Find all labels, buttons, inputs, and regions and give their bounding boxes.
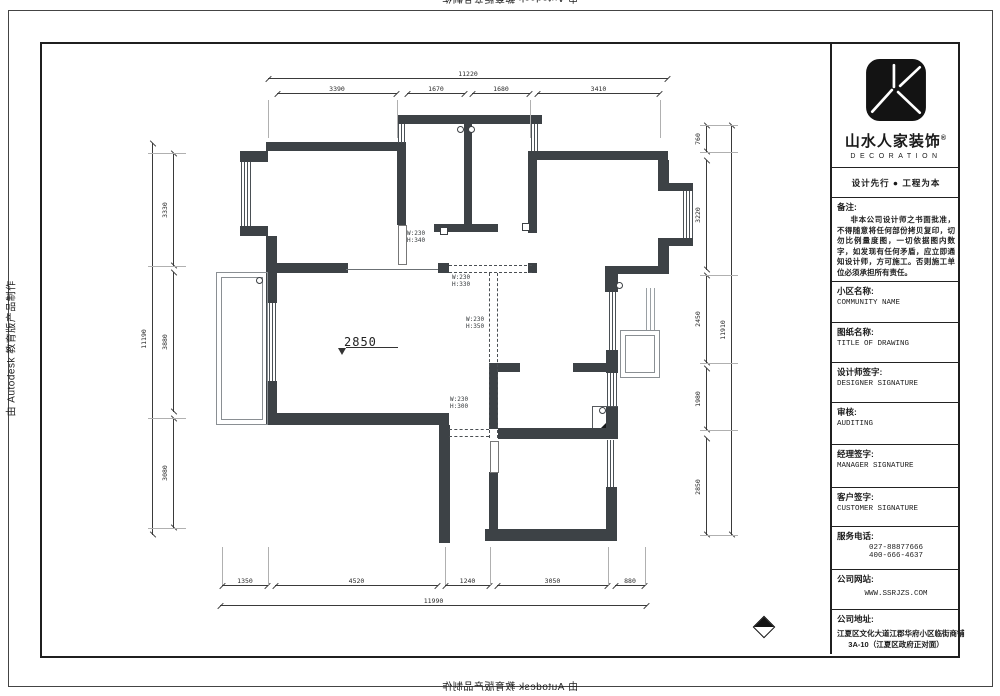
opening-size-label: W:230H:350: [466, 316, 484, 330]
dimension-line: 1680: [472, 93, 530, 94]
dashed-opening-line: [489, 273, 490, 438]
extension-line: [700, 125, 738, 126]
window-symbol: [607, 440, 616, 487]
wall: [573, 363, 617, 372]
field-label: 经理签字:: [837, 448, 955, 460]
extension-line: [490, 547, 491, 585]
field-label: 客户签字:: [837, 491, 955, 503]
dimension-line: 11990: [220, 605, 647, 606]
dimension-value: 1680: [472, 85, 530, 93]
wall: [498, 363, 520, 372]
fixture-circle-icon: [457, 126, 464, 133]
extension-line: [397, 100, 398, 138]
leader-line: [346, 347, 398, 348]
wall: [528, 151, 537, 233]
dimension-line: 3220: [706, 160, 707, 270]
website-label: 公司网站:: [837, 573, 955, 585]
wall: [438, 263, 449, 273]
dimension-line: 1670: [407, 93, 465, 94]
dimension-line: 4520: [275, 585, 438, 586]
dimension-line: 760: [706, 125, 707, 152]
dimension-value: 1350: [222, 577, 268, 585]
dashed-opening-line: [449, 272, 532, 273]
opening-size-label: W:230H:300: [450, 396, 468, 410]
company-slogan: 设计先行 ● 工程为本: [832, 168, 960, 198]
company-logo: [865, 58, 927, 122]
wall: [266, 263, 348, 273]
wall: [266, 413, 449, 425]
auditing-field: 审核: AUDITING: [832, 403, 960, 445]
dimension-line: 11190: [152, 143, 153, 535]
notes-text: 非本公司设计师之书面批准，不得随意将任何部份拷贝复印，切勿比例量度图，一切依据图…: [837, 215, 955, 278]
wall: [439, 425, 450, 543]
customer-signature-field: 客户签字: CUSTOMER SIGNATURE: [832, 488, 960, 527]
dimension-value: 11220: [268, 70, 668, 78]
wall: [266, 142, 406, 151]
autodesk-education-stamp-left: 由 Autodesk 教育版产品制作: [3, 285, 18, 417]
dimension-line: 11220: [268, 78, 668, 79]
extension-line: [268, 100, 269, 138]
field-value: DESIGNER SIGNATURE: [837, 380, 955, 388]
address-line-1: 江夏区文化大道江郡华府小区临街商铺: [837, 628, 955, 639]
phone-number-1: 027-88877666: [837, 544, 955, 552]
window-symbol: [607, 373, 617, 407]
opening-line: [346, 269, 438, 270]
extension-line: [445, 547, 446, 585]
extension-line: [700, 430, 738, 431]
extension-line: [660, 100, 661, 138]
dimension-value: 3050: [497, 577, 608, 585]
dimension-value: 880: [615, 577, 645, 585]
address-line-2: 3A-10（江夏区政府正对面）: [837, 639, 955, 650]
dashed-opening-line: [449, 429, 489, 430]
company-subtitle: DECORATION: [850, 153, 941, 160]
dimension-value: 3080: [161, 465, 169, 481]
dimension-value: 3330: [161, 202, 169, 218]
dimension-line: 1350: [222, 585, 268, 586]
dimension-value: 3220: [694, 207, 702, 223]
opening-size-value: W:230: [452, 274, 470, 281]
dimension-line: 2450: [706, 275, 707, 363]
field-label: 小区名称:: [837, 285, 955, 297]
extension-line: [700, 363, 738, 364]
autodesk-education-stamp-top: 由 Autodesk 教育版产品制作: [400, 0, 620, 7]
dimension-line: 3080: [173, 418, 174, 528]
dimension-line: 1980: [706, 368, 707, 430]
balcony-outline: [221, 277, 263, 420]
field-value: AUDITING: [837, 420, 955, 428]
wall: [533, 151, 668, 160]
wall: [464, 124, 472, 224]
extension-line: [148, 153, 186, 154]
dimension-line: 1240: [445, 585, 490, 586]
wall: [397, 115, 542, 124]
sheet-inner-border: [40, 42, 960, 658]
notes-field: 备注: 非本公司设计师之书面批准，不得随意将任何部份拷贝复印，切勿比例量度图，一…: [832, 198, 960, 282]
notes-label: 备注:: [837, 201, 955, 213]
address-field: 公司地址: 江夏区文化大道江郡华府小区临街商铺 3A-10（江夏区政府正对面）: [832, 610, 960, 654]
dimension-value: 1670: [407, 85, 465, 93]
field-value: MANAGER SIGNATURE: [837, 462, 955, 470]
field-value: COMMUNITY NAME: [837, 299, 955, 307]
extension-line: [222, 547, 223, 585]
leader-arrow-icon: [338, 348, 346, 355]
dimension-line: 3410: [537, 93, 660, 94]
phone-number-2: 400-666-4637: [837, 552, 955, 560]
fixture-circle-icon: [616, 282, 623, 289]
website-url: WWW.SSRJZS.COM: [837, 590, 955, 598]
title-block: 山水人家装饰® DECORATION 设计先行 ● 工程为本 备注: 非本公司设…: [830, 42, 960, 654]
window-symbol: [241, 162, 251, 226]
wall: [240, 151, 268, 162]
window-symbol: [398, 124, 407, 143]
field-label: 图纸名称:: [837, 326, 955, 338]
manager-signature-field: 经理签字: MANAGER SIGNATURE: [832, 445, 960, 488]
field-value: TITLE OF DRAWING: [837, 340, 955, 348]
wall: [606, 487, 617, 541]
community-name-field: 小区名称: COMMUNITY NAME: [832, 282, 960, 323]
website-field: 公司网站: WWW.SSRJZS.COM: [832, 570, 960, 610]
extension-line: [530, 100, 531, 138]
fixture-circle-icon: [468, 126, 475, 133]
extension-line: [700, 535, 738, 536]
opening-size-value: W:230: [450, 396, 468, 403]
autodesk-education-stamp-bottom: 由 Autodesk 教育版产品制作: [428, 678, 592, 693]
extension-line: [645, 547, 646, 585]
fixture-square-icon: [522, 223, 530, 231]
phone-field: 服务电话: 027-88877666 400-666-4637: [832, 527, 960, 570]
door-opening: [398, 225, 407, 265]
dimension-line: 3330: [173, 153, 174, 266]
extension-line: [148, 266, 186, 267]
dimension-value: 11910: [719, 320, 727, 340]
opening-size-label: W:230H:330: [452, 274, 470, 288]
dashed-opening-line: [449, 265, 532, 266]
drawing-title-field: 图纸名称: TITLE OF DRAWING: [832, 323, 960, 363]
window-symbol: [609, 292, 617, 350]
field-label: 审核:: [837, 406, 955, 418]
dimension-line: 3880: [173, 272, 174, 412]
opening-size-value: H:350: [466, 323, 484, 330]
wall: [498, 428, 618, 439]
wall: [605, 266, 618, 292]
balcony-outline: [625, 335, 655, 373]
dimension-value: 1240: [445, 577, 490, 585]
extension-line: [148, 418, 186, 419]
extension-line: [700, 152, 738, 153]
extension-line: [608, 547, 609, 585]
opening-size-value: H:340: [407, 237, 425, 244]
wall: [658, 183, 693, 191]
wall: [240, 226, 268, 236]
wall: [658, 160, 669, 183]
dimension-value: 760: [694, 133, 702, 145]
dimension-value: 3410: [537, 85, 660, 93]
phone-label: 服务电话:: [837, 530, 955, 542]
dimension-value: 2850: [694, 479, 702, 495]
dimension-value: 3880: [161, 334, 169, 350]
dashed-opening-line: [449, 436, 489, 437]
extension-line: [700, 275, 738, 276]
extension-line: [148, 528, 186, 529]
dashed-opening-line: [497, 273, 498, 438]
fixture-square-icon: [440, 227, 448, 235]
dimension-line: 11910: [731, 125, 732, 535]
door-opening: [490, 441, 499, 473]
wall: [658, 238, 693, 246]
registered-mark: ®: [941, 135, 947, 142]
level-annotation: 2850: [344, 331, 377, 350]
dimension-value: 4520: [275, 577, 438, 585]
opening-size-label: W:230H:340: [407, 230, 425, 244]
dimension-line: 2850: [706, 438, 707, 535]
dimension-value: 2450: [694, 311, 702, 327]
fixture-circle-icon: [599, 407, 606, 414]
fixture-circle-icon: [256, 277, 263, 284]
dimension-value: 11190: [140, 329, 148, 349]
company-name: 山水人家装饰®: [845, 130, 947, 151]
designer-signature-field: 设计师签字: DESIGNER SIGNATURE: [832, 363, 960, 403]
dimension-line: 880: [615, 585, 645, 586]
wall: [606, 407, 618, 428]
drawing-sheet: 由 Autodesk 教育版产品制作 由 Autodesk 教育版产品制作 由 …: [0, 0, 1000, 696]
wall: [485, 529, 606, 541]
opening-size-value: W:230: [407, 230, 425, 237]
extension-line: [268, 547, 269, 585]
wall: [397, 143, 406, 225]
dimension-line: 3050: [497, 585, 608, 586]
field-value: CUSTOMER SIGNATURE: [837, 505, 955, 513]
company-header: 山水人家装饰® DECORATION: [832, 42, 960, 168]
window-symbol: [531, 124, 540, 151]
opening-size-value: W:230: [466, 316, 484, 323]
dimension-line: 3390: [277, 93, 397, 94]
dimension-value: 3390: [277, 85, 397, 93]
field-label: 设计师签字:: [837, 366, 955, 378]
address-label: 公司地址:: [837, 613, 955, 625]
window-symbol: [683, 191, 693, 238]
dimension-value: 1980: [694, 391, 702, 407]
opening-size-value: H:330: [452, 281, 470, 288]
dimension-value: 11990: [220, 597, 647, 605]
window-symbol: [646, 288, 657, 330]
opening-size-value: H:300: [450, 403, 468, 410]
